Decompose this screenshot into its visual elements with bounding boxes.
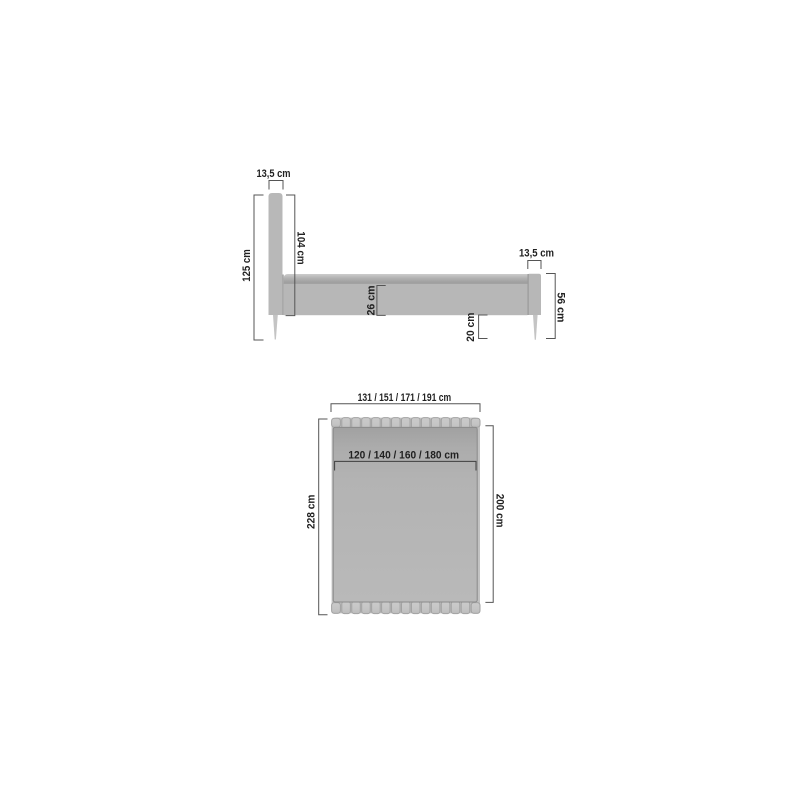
- svg-text:228 cm: 228 cm: [306, 494, 318, 529]
- svg-text:26 cm: 26 cm: [365, 285, 377, 315]
- svg-text:20 cm: 20 cm: [465, 313, 477, 342]
- svg-text:13,5 cm: 13,5 cm: [257, 168, 291, 180]
- svg-text:125 cm: 125 cm: [241, 249, 253, 282]
- svg-text:13,5 cm: 13,5 cm: [519, 248, 554, 260]
- svg-text:56 cm: 56 cm: [555, 292, 567, 322]
- svg-text:104 cm: 104 cm: [295, 231, 307, 264]
- svg-text:131 / 151 / 171 / 191 cm: 131 / 151 / 171 / 191 cm: [358, 392, 452, 404]
- svg-text:200 cm: 200 cm: [493, 494, 505, 528]
- svg-text:120 / 140 / 160 / 180 cm: 120 / 140 / 160 / 180 cm: [348, 450, 459, 462]
